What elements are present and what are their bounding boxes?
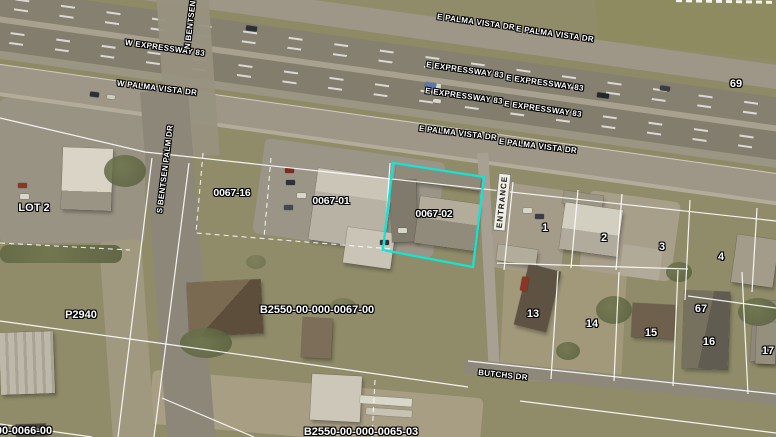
parcel-label-0067-01: 0067-01 [312,195,349,207]
lot-number-14: 14 [586,318,598,330]
lot-number-3: 3 [659,241,665,253]
parcel-label-p2940: P2940 [65,309,97,321]
lot-number-17: 17 [762,345,774,357]
lot-number-1: 1 [542,222,548,234]
lot-number-2: 2 [601,232,607,244]
parcel-label-lot2: LOT 2 [18,202,49,214]
lot-number-67: 67 [695,303,707,315]
account-label-b2550-0065: B2550-00-000-0065-03 [304,426,418,437]
lot-number-4: 4 [718,251,724,263]
parcel-boundaries [0,0,776,437]
parcel-label-0067-02-selected: 0067-02 [415,208,452,220]
account-label-b2550-0067: B2550-00-000-0067-00 [260,304,374,316]
lot-number-69: 69 [730,78,742,90]
lot-number-15: 15 [645,327,657,339]
account-label-b2550-0066-clipped: 00-0066-00 [0,425,52,437]
aerial-map-canvas[interactable]: W EXPRESSWAY 83 E EXPRESSWAY 83 E EXPRES… [0,0,776,437]
lot-number-13: 13 [527,308,539,320]
parcel-label-0067-16: 0067-16 [213,187,250,199]
lot-number-16: 16 [703,336,715,348]
